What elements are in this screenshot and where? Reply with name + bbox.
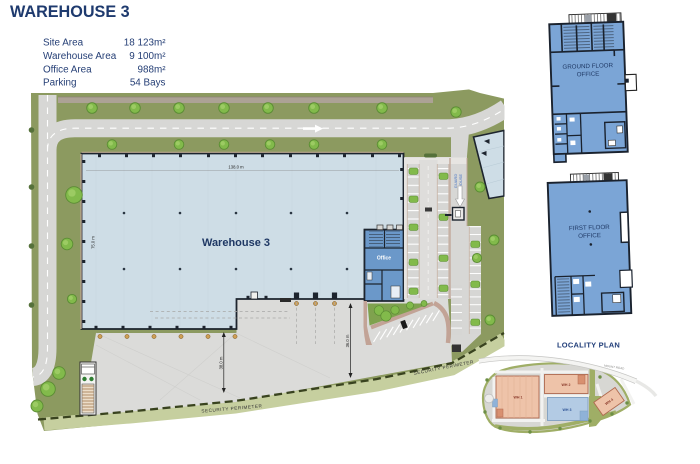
svg-text:WAREHOUSE 3: WAREHOUSE 3 bbox=[10, 3, 130, 21]
svg-text:Warehouse Area: Warehouse Area bbox=[43, 51, 117, 62]
svg-text:9 100m²: 9 100m² bbox=[129, 51, 166, 62]
svg-text:OFFICE: OFFICE bbox=[577, 71, 600, 79]
svg-text:54 Bays: 54 Bays bbox=[130, 78, 166, 89]
svg-text:Parking: Parking bbox=[43, 78, 76, 89]
svg-text:988m²: 988m² bbox=[138, 64, 167, 75]
svg-text:36.0 m: 36.0 m bbox=[345, 334, 350, 347]
svg-text:Warehouse 3: Warehouse 3 bbox=[202, 237, 270, 249]
svg-text:Site Area: Site Area bbox=[43, 38, 84, 49]
svg-text:LOCALITY PLAN: LOCALITY PLAN bbox=[557, 341, 620, 350]
svg-text:138.0 m: 138.0 m bbox=[228, 165, 244, 170]
svg-text:38.0 m: 38.0 m bbox=[218, 356, 223, 369]
svg-text:18 123m²: 18 123m² bbox=[124, 38, 166, 49]
svg-text:WH 3: WH 3 bbox=[563, 408, 572, 412]
svg-text:Office Area: Office Area bbox=[43, 64, 92, 75]
svg-text:75.0 m: 75.0 m bbox=[91, 236, 96, 249]
svg-text:FIRST FLOOR: FIRST FLOOR bbox=[569, 224, 611, 232]
svg-text:WH 1: WH 1 bbox=[514, 396, 523, 400]
svg-text:Office: Office bbox=[377, 256, 391, 262]
svg-text:OFFICE: OFFICE bbox=[578, 232, 601, 240]
svg-text:WH 2: WH 2 bbox=[562, 383, 571, 387]
